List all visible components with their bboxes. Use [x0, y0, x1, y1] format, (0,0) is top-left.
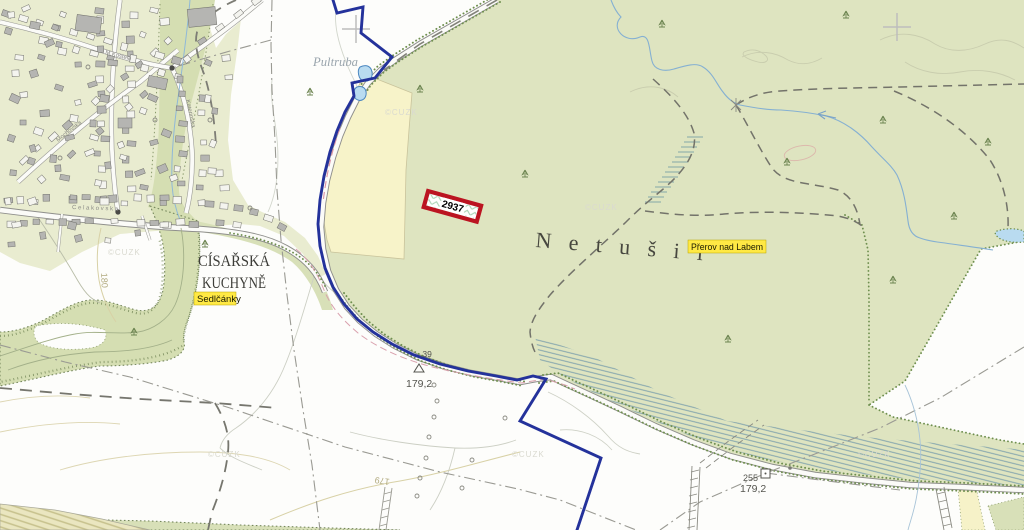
svg-text:Pultruba: Pultruba: [312, 55, 358, 69]
svg-text:179,2: 179,2: [406, 378, 432, 390]
svg-text:Přerov nad Labem: Přerov nad Labem: [691, 242, 763, 253]
svg-text:©CUZK: ©CUZK: [208, 450, 241, 459]
svg-text:©CUZK: ©CUZK: [108, 248, 141, 257]
svg-text:.39: .39: [420, 349, 432, 359]
svg-text:©CUZK: ©CUZK: [585, 203, 618, 212]
svg-text:Sedlčánky: Sedlčánky: [197, 294, 241, 305]
svg-text:©CUZK: ©CUZK: [858, 450, 891, 459]
svg-text:179,2: 179,2: [740, 483, 766, 495]
svg-text:KUCHYNĚ: KUCHYNĚ: [202, 273, 266, 292]
svg-text:CÍSAŘSKÁ: CÍSAŘSKÁ: [198, 251, 270, 270]
svg-text:179: 179: [374, 475, 390, 487]
svg-text:255: 255: [743, 473, 758, 483]
svg-text:180: 180: [99, 273, 110, 289]
svg-text:©CUZK: ©CUZK: [512, 450, 545, 459]
svg-text:©CUZK: ©CUZK: [385, 108, 418, 117]
